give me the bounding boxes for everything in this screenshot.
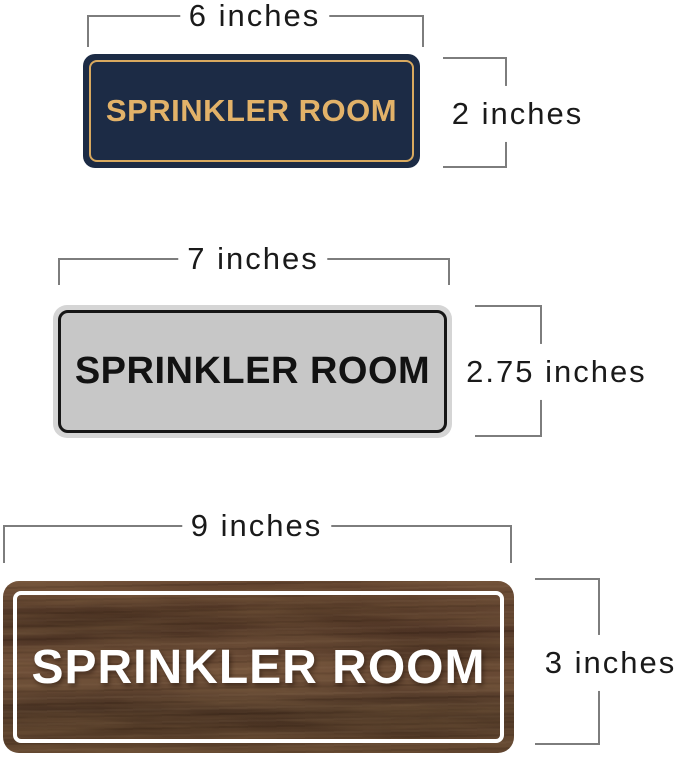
height-dimension-bracket-sign2: 2.75 inches: [475, 307, 542, 437]
sign-text-walnut: SPRINKLER ROOM: [31, 640, 485, 695]
width-dimension-label-sign1: 6 inches: [180, 0, 329, 33]
sign-text-navy: SPRINKLER ROOM: [106, 93, 397, 129]
sign-size-diagram: 6 inches SPRINKLER ROOM 2 inches 7 inche…: [0, 0, 679, 757]
width-dimension-bracket-sign2: 7 inches: [58, 258, 448, 260]
height-dimension-bracket-sign1: 2 inches: [443, 59, 507, 168]
height-dimension-label-sign1: 2 inches: [446, 85, 589, 141]
sprinkler-sign-navy: SPRINKLER ROOM: [83, 54, 420, 168]
height-dimension-label-sign3: 3 inches: [539, 634, 679, 690]
width-dimension-bracket-sign3: 9 inches: [3, 525, 510, 527]
height-dimension-label-sign2: 2.75 inches: [460, 344, 653, 400]
height-dimension-bracket-sign3: 3 inches: [535, 580, 600, 745]
width-dimension-label-sign3: 9 inches: [182, 509, 331, 543]
sign-text-silver: SPRINKLER ROOM: [75, 350, 430, 393]
width-dimension-bracket-sign1: 6 inches: [87, 15, 422, 17]
sprinkler-sign-walnut: SPRINKLER ROOM: [3, 581, 514, 753]
sprinkler-sign-silver: SPRINKLER ROOM: [53, 305, 452, 438]
width-dimension-label-sign2: 7 inches: [178, 242, 327, 276]
